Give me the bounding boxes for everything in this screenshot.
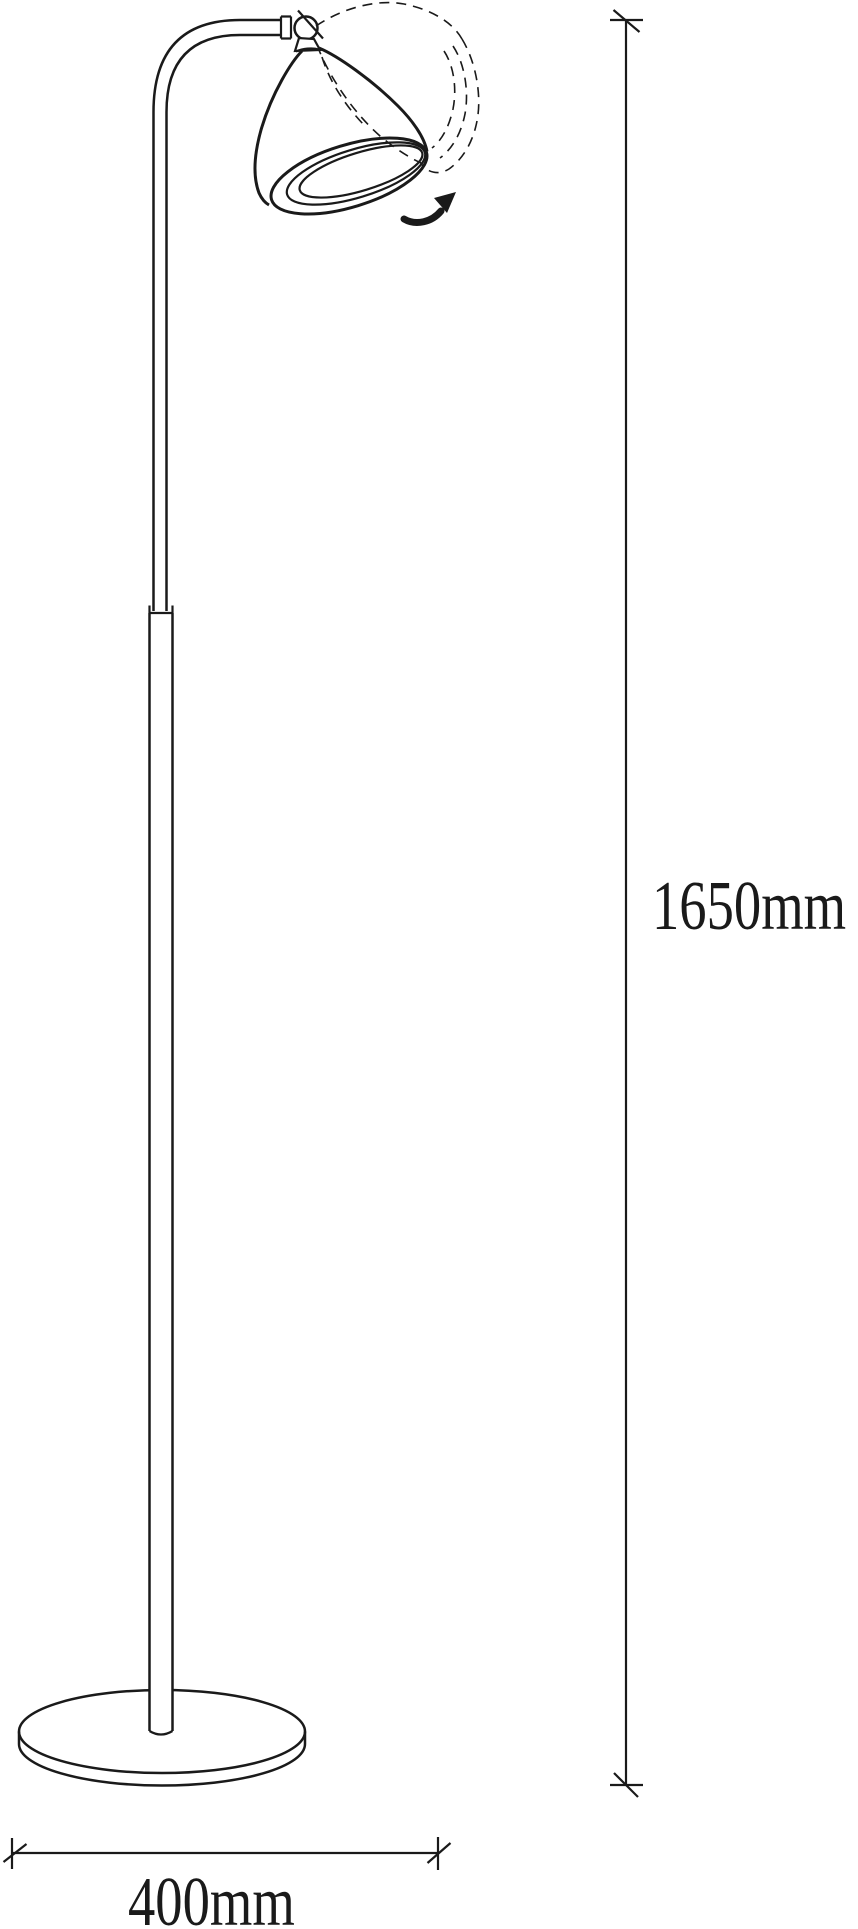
width-dimension-label: 400mm <box>128 1868 295 1929</box>
dimension-diagram: 1650mm 400mm <box>0 0 858 1929</box>
lamp-pole <box>150 112 173 1735</box>
rotation-arrow-icon <box>404 192 456 222</box>
floor-lamp-line-drawing <box>0 0 858 1929</box>
lamp-shade <box>255 48 435 229</box>
lamp-arm <box>154 17 292 113</box>
height-dimension-line <box>610 10 643 1797</box>
pivot-joint <box>295 11 324 52</box>
height-dimension-label: 1650mm <box>652 872 846 942</box>
